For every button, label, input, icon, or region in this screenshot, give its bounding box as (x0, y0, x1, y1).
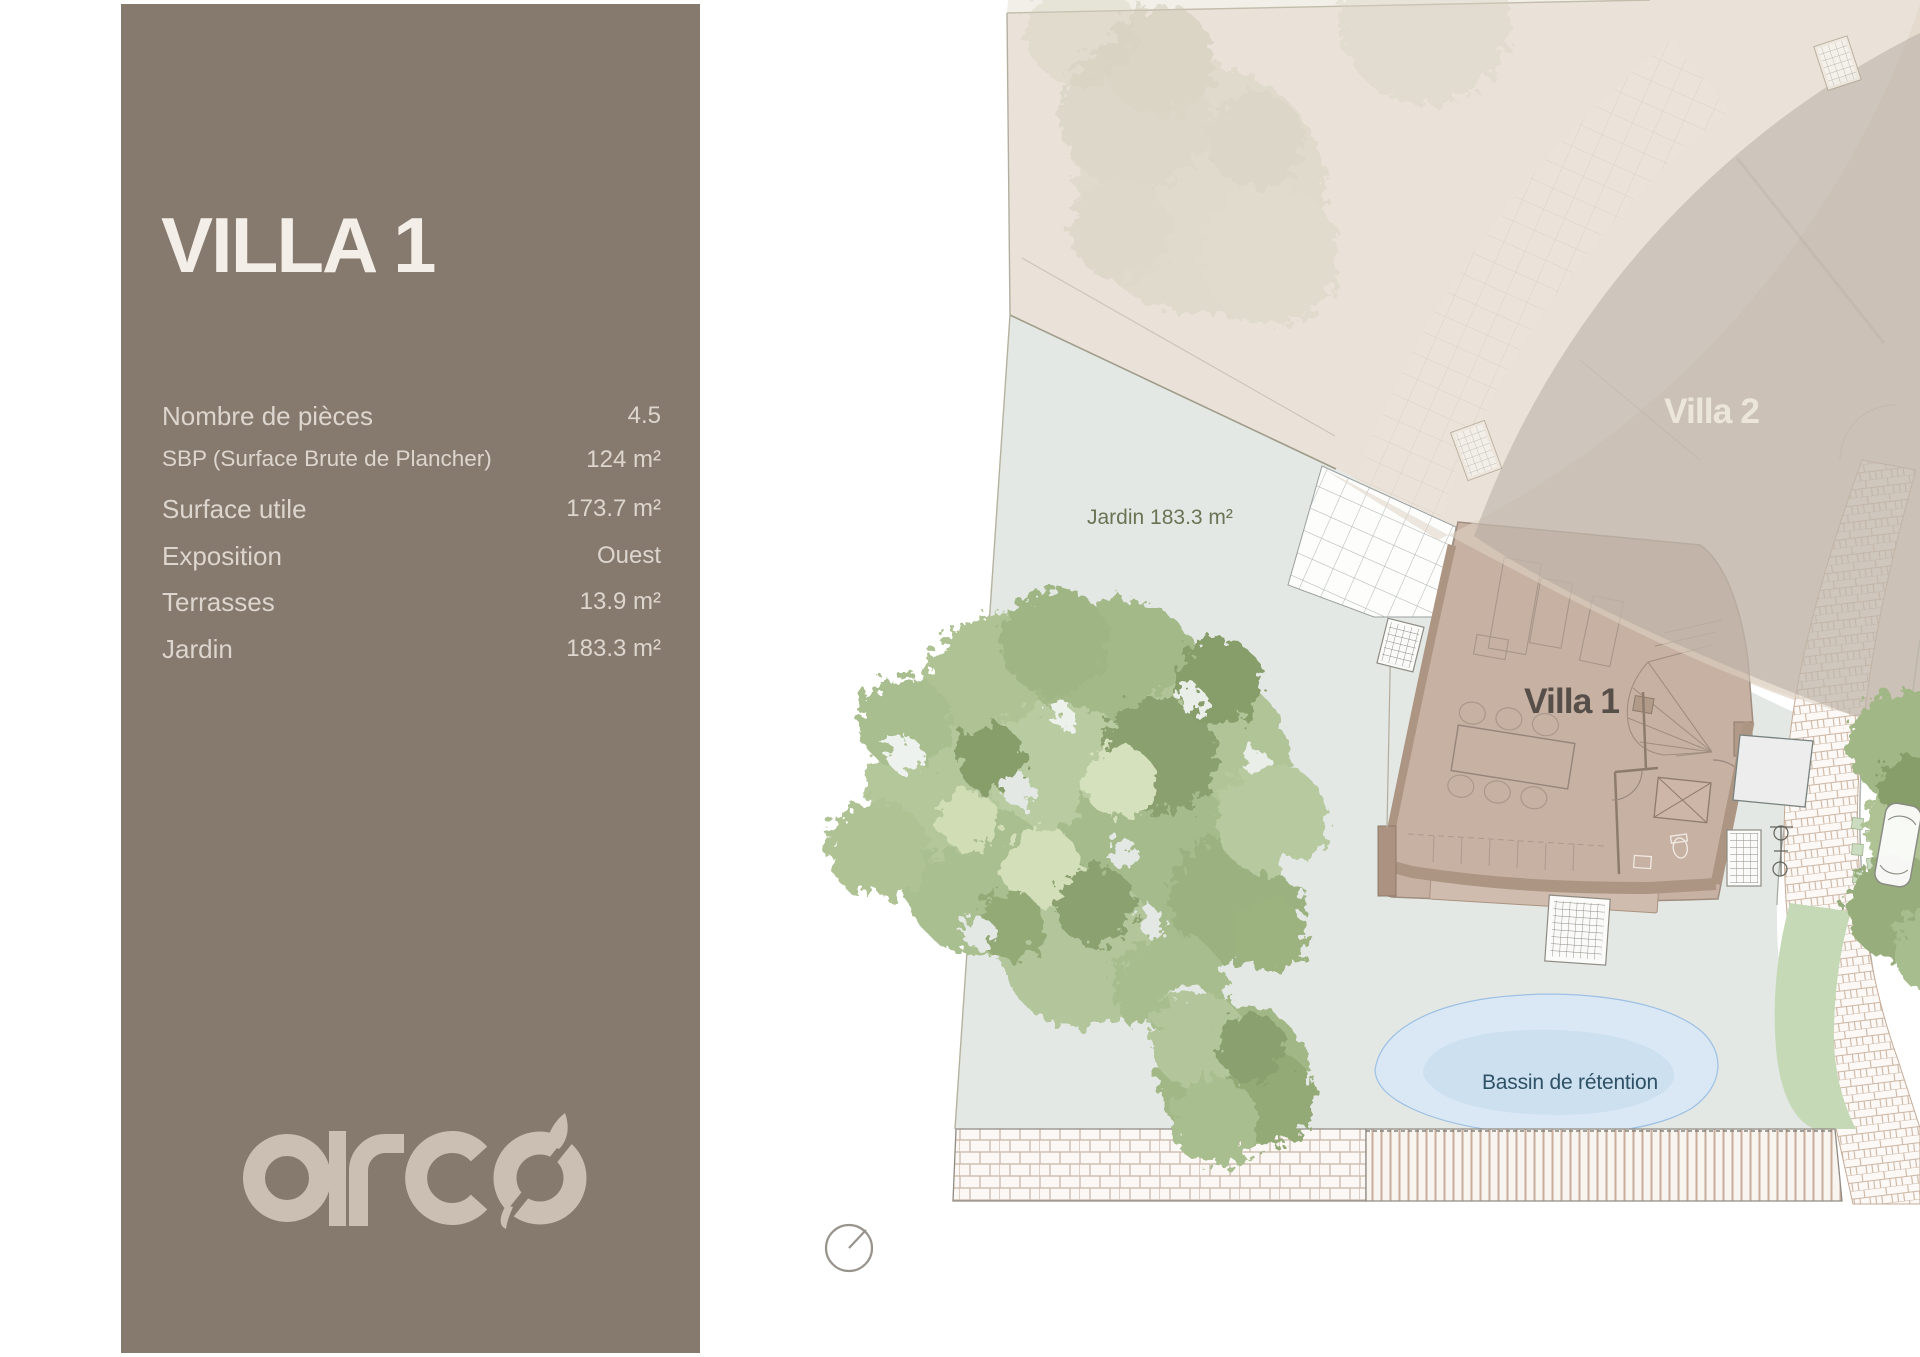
svg-text:Jardin 183.3 m²: Jardin 183.3 m² (1087, 506, 1233, 529)
svg-text:Bassin de rétention: Bassin de rétention (1482, 1071, 1658, 1094)
svg-text:Villa 1: Villa 1 (1524, 681, 1619, 721)
svg-text:Villa 2: Villa 2 (1664, 391, 1759, 431)
